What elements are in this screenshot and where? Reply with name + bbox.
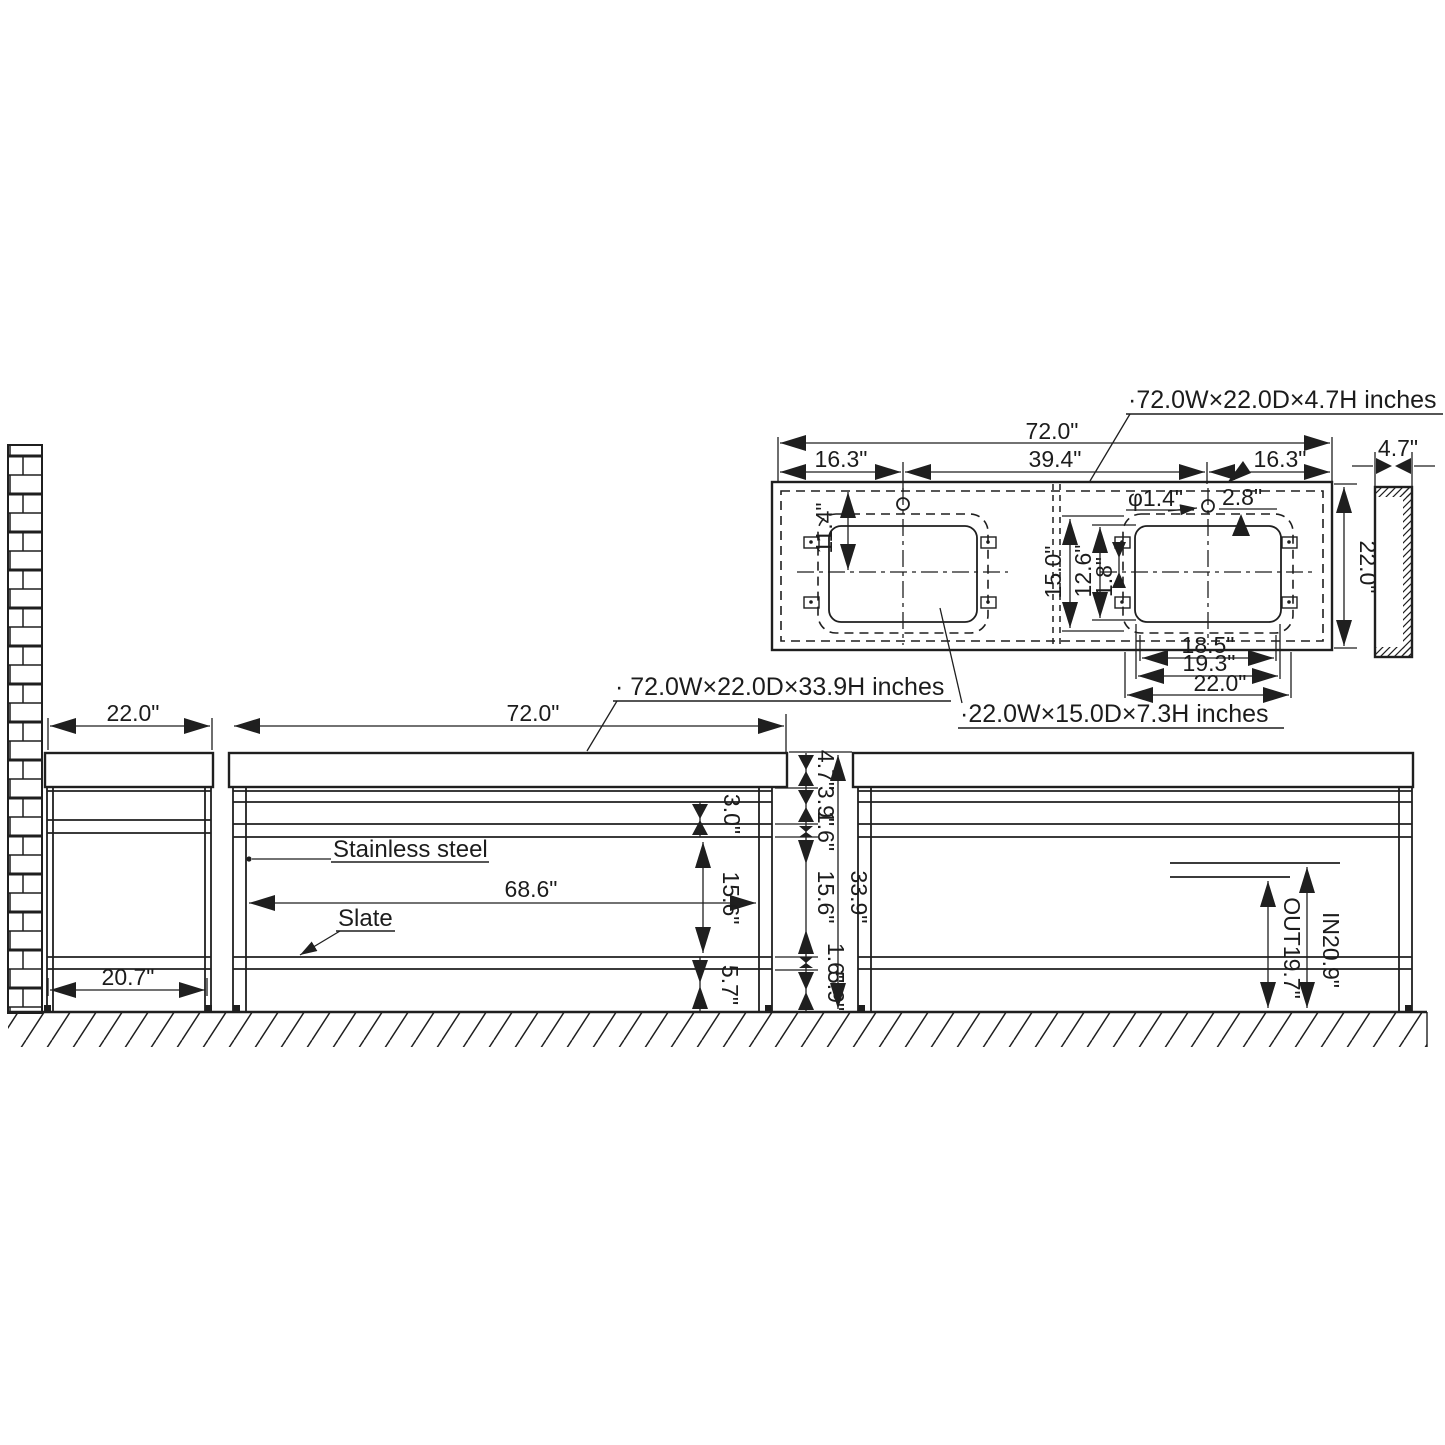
dim-outlet-height: OUT19.7" — [1279, 897, 1305, 998]
dim-inner-width: 68.6" — [505, 876, 558, 902]
right-sink-cutout — [1100, 488, 1315, 645]
dim-shelf-clearance: 15.6" — [718, 872, 744, 925]
dim-stack-base: 5.9" — [823, 971, 849, 1011]
callout-labels: ·72.0W×22.0D×4.7H inches · 72.0W×22.0D×3… — [587, 386, 1443, 751]
dim-plan-depth: 22.0" — [1355, 541, 1381, 594]
sink-label: ·22.0W×15.0D×7.3H inches — [960, 700, 1269, 728]
dim-faucet-spacing: 2.8" — [1222, 484, 1262, 510]
dim-bowl-depth-outer: 15.0" — [1040, 546, 1066, 599]
dim-top-thickness: 4.7" — [1378, 435, 1418, 461]
dim-bowl-offset: 1.8" — [1091, 557, 1117, 597]
brick-wall — [8, 445, 42, 1013]
technical-drawing: 72.0" 16.3" 39.4" 16.3" 4.7" 22.0" 11.4"… — [0, 0, 1445, 1445]
dim-shelf-depth: 20.7" — [102, 964, 155, 990]
dim-side-depth: 22.0" — [107, 700, 160, 726]
vanity-dimension-drawing: 72.0" 16.3" 39.4" 16.3" 4.7" 22.0" 11.4"… — [0, 0, 1445, 1445]
material-shelf-label: Slate — [338, 905, 393, 932]
vanity-label: · 72.0W×22.0D×33.9H inches — [615, 673, 944, 701]
dim-faucet-diameter: φ1.4" — [1128, 485, 1183, 511]
floor — [8, 1012, 1427, 1047]
dim-inlet-height: IN20.9" — [1318, 912, 1344, 988]
dim-bowl-width-outer: 22.0" — [1194, 670, 1247, 696]
dim-bowl-center: 11.4" — [811, 502, 837, 553]
dim-plan-left-seg: 16.3" — [815, 446, 868, 472]
dim-base-height: 5.7" — [717, 965, 743, 1005]
dim-overall-height: 33.9" — [846, 871, 872, 924]
side-view: 22.0" 20.7" — [44, 700, 213, 1012]
countertop-label: ·72.0W×22.0D×4.7H inches — [1128, 386, 1437, 414]
material-frame-label: Stainless steel — [333, 836, 488, 863]
dim-plan-overall: 72.0" — [1026, 418, 1079, 444]
dim-stack-clearance: 15.6" — [813, 871, 839, 924]
back-view: OUT19.7" IN20.9" — [853, 753, 1413, 1012]
dim-stack-rail: 1.6" — [813, 811, 839, 851]
dim-stack-counter: 4.7" — [813, 750, 839, 790]
dim-front-width: 72.0" — [507, 700, 560, 726]
dim-plan-right-seg: 16.3" — [1254, 446, 1307, 472]
front-view: 72.0" Stainless steel Slate 68.6" 3.0" 1… — [229, 700, 787, 1012]
dim-apron: 3.0" — [719, 794, 745, 834]
plan-dimensions: 72.0" 16.3" 39.4" 16.3" 4.7" 22.0" 11.4"… — [778, 418, 1435, 698]
dim-plan-center-seg: 39.4" — [1029, 446, 1082, 472]
